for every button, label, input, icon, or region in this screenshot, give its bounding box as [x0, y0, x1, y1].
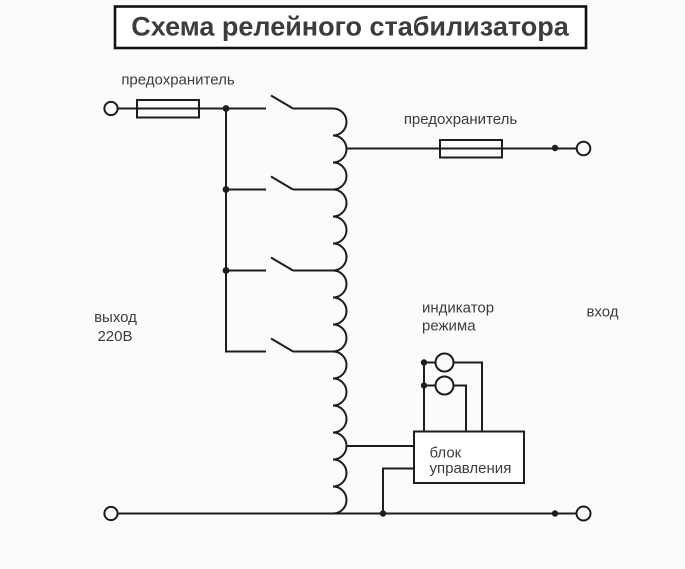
svg-text:вход: вход [586, 304, 618, 321]
svg-text:управления: управления [430, 460, 512, 477]
svg-text:Схема релейного стабилизатора: Схема релейного стабилизатора [131, 12, 569, 42]
svg-text:индикатор: индикатор [422, 300, 494, 317]
svg-text:220В: 220В [97, 328, 132, 345]
svg-text:блок: блок [430, 445, 462, 462]
svg-text:предохранитель: предохранитель [404, 111, 518, 128]
svg-text:предохранитель: предохранитель [121, 72, 235, 89]
svg-text:выход: выход [94, 309, 137, 326]
svg-text:режима: режима [422, 318, 476, 335]
